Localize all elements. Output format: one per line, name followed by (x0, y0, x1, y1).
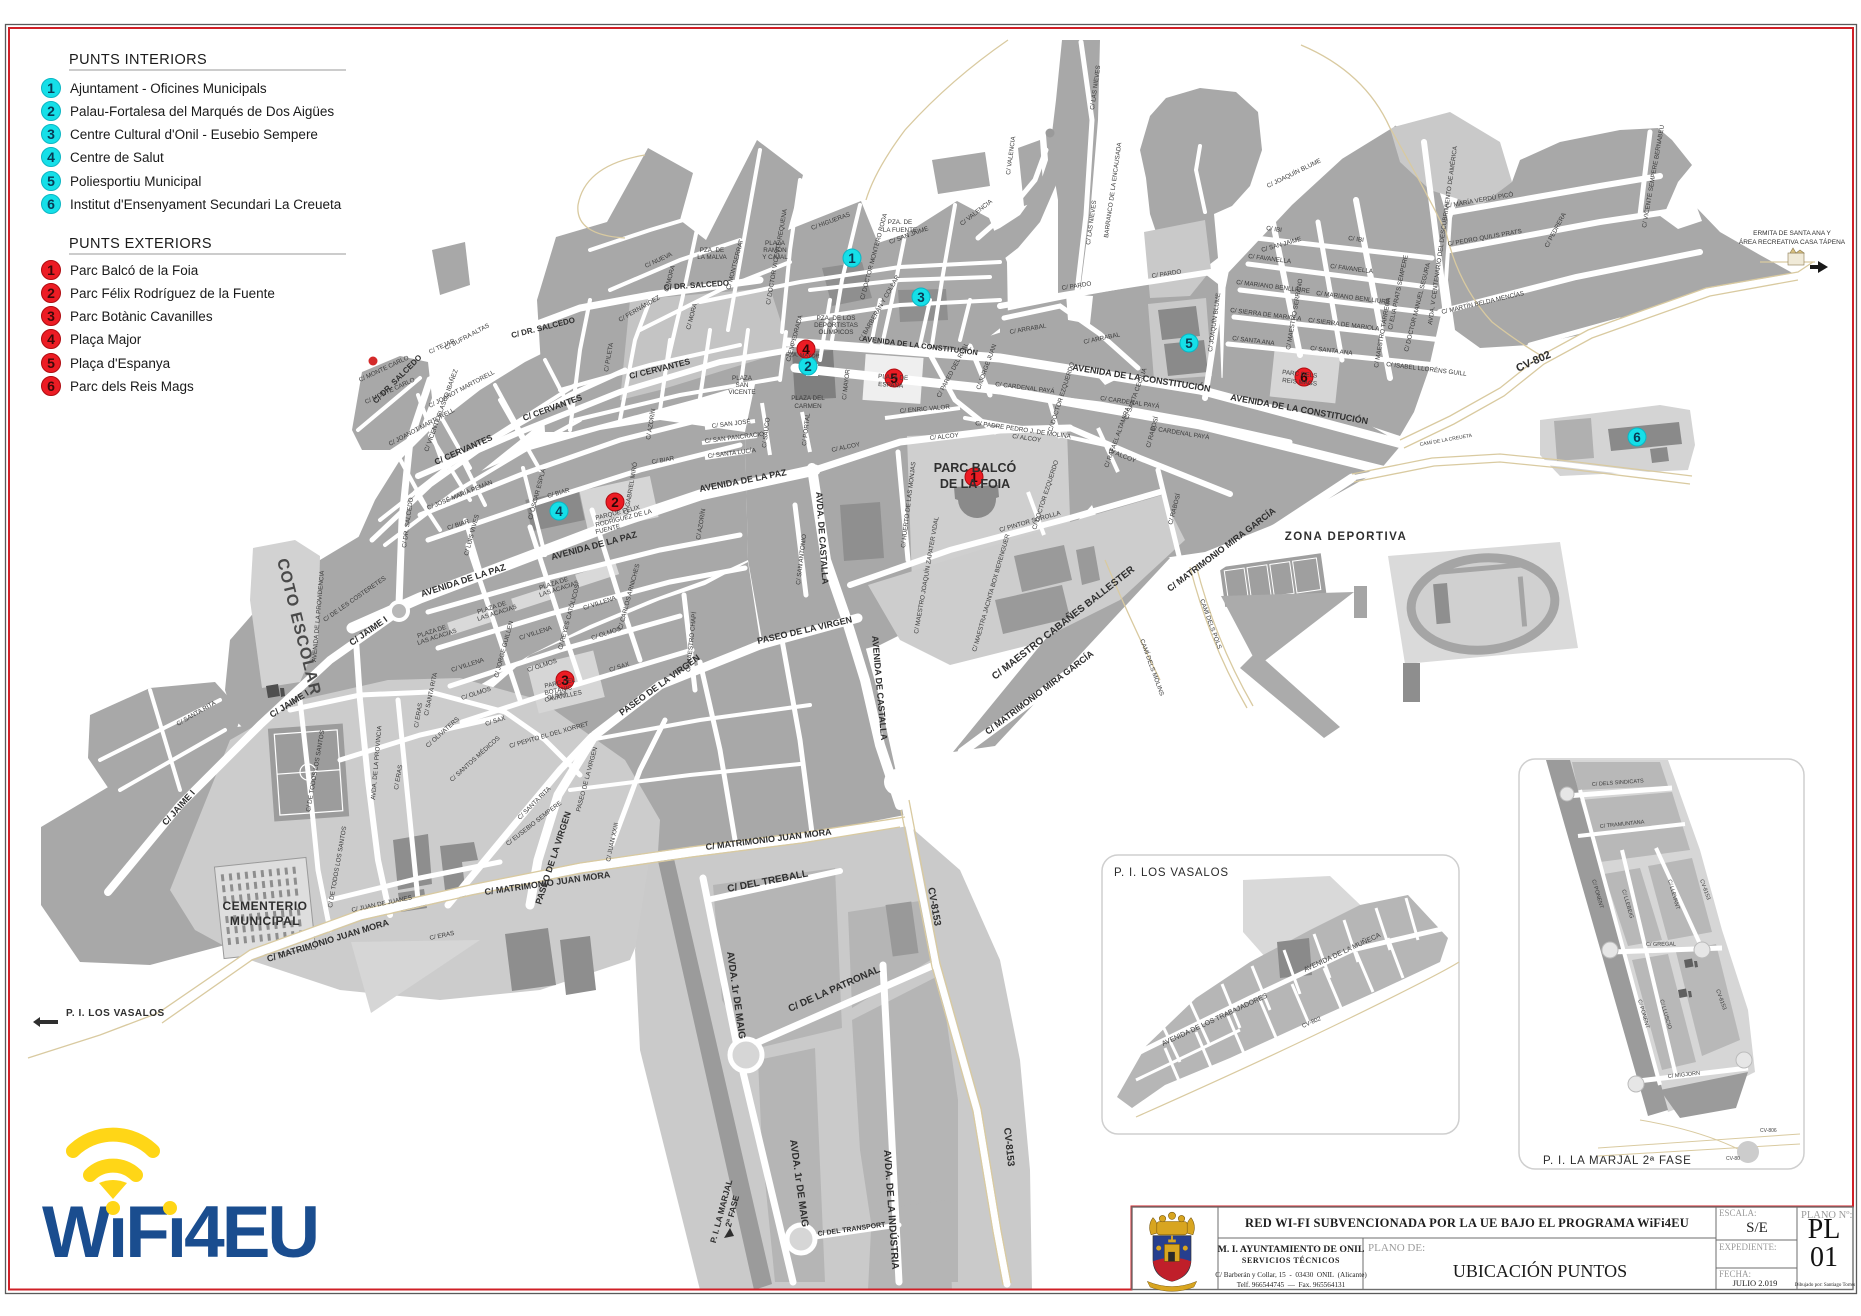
svg-text:5: 5 (47, 173, 55, 189)
svg-text:ÁREA RECREATIVA CASA TÁPENA: ÁREA RECREATIVA CASA TÁPENA (1739, 237, 1846, 246)
svg-text:UBICACIÓN PUNTOS: UBICACIÓN PUNTOS (1453, 1260, 1627, 1281)
svg-text:LA MALVA: LA MALVA (697, 254, 727, 261)
svg-text:Ajuntament - Oficines Municipa: Ajuntament - Oficines Municipals (70, 81, 267, 96)
svg-text:Parc Félix Rodríguez de la Fue: Parc Félix Rodríguez de la Fuente (70, 286, 275, 301)
svg-text:PZA. DE: PZA. DE (888, 219, 913, 226)
svg-text:DE LA FOIA: DE LA FOIA (940, 477, 1010, 491)
svg-text:PZA. DE LOS: PZA. DE LOS (817, 315, 856, 322)
svg-text:Centre de Salut: Centre de Salut (70, 150, 164, 165)
svg-text:PLANO DE:: PLANO DE: (1368, 1242, 1425, 1254)
svg-text:1: 1 (848, 251, 856, 266)
svg-text:3: 3 (47, 126, 55, 142)
svg-text:PL: PL (1808, 1214, 1841, 1245)
svg-text:JULIO 2.019: JULIO 2.019 (1733, 1278, 1778, 1288)
svg-text:WıFı4EU: WıFı4EU (42, 1192, 317, 1273)
svg-text:4: 4 (47, 331, 55, 347)
svg-text:01: 01 (1810, 1242, 1838, 1273)
svg-text:6: 6 (47, 196, 55, 212)
svg-text:CEMENTERIO: CEMENTERIO (222, 899, 307, 913)
svg-text:2: 2 (47, 285, 55, 301)
svg-text:PLAZA: PLAZA (732, 375, 753, 382)
svg-text:VICENTE: VICENTE (728, 389, 755, 396)
svg-text:EXPEDIENTE:: EXPEDIENTE: (1719, 1242, 1777, 1252)
svg-text:PUNTS INTERIORS: PUNTS INTERIORS (69, 52, 207, 68)
svg-text:P. I. LOS VASALOS: P. I. LOS VASALOS (66, 1008, 165, 1019)
svg-text:P. I. LOS VASALOS: P. I. LOS VASALOS (1114, 867, 1229, 879)
svg-text:2: 2 (47, 103, 55, 119)
svg-text:Parc Balcó de la Foia: Parc Balcó de la Foia (70, 263, 199, 278)
svg-text:S/E: S/E (1746, 1220, 1768, 1236)
svg-text:M. I. AYUNTAMIENTO DE ONIL: M. I. AYUNTAMIENTO DE ONIL (1218, 1244, 1365, 1255)
svg-text:Y CAJAL: Y CAJAL (762, 254, 788, 261)
svg-text:Plaça Major: Plaça Major (70, 332, 142, 347)
svg-text:SERVICIOS TÉCNICOS: SERVICIOS TÉCNICOS (1242, 1255, 1340, 1265)
svg-text:5: 5 (47, 355, 55, 371)
svg-text:1: 1 (47, 262, 55, 278)
svg-text:Palau-Fortalesa del Marqués de: Palau-Fortalesa del Marqués de Dos Aigüe… (70, 104, 334, 119)
svg-text:ESCALA:: ESCALA: (1719, 1208, 1757, 1218)
svg-text:6: 6 (1633, 430, 1641, 445)
svg-text:CV-80: CV-80 (1726, 1156, 1740, 1162)
svg-text:1: 1 (47, 80, 55, 96)
svg-text:MUNICIPAL: MUNICIPAL (230, 914, 300, 928)
svg-text:RAMÓN: RAMÓN (763, 245, 787, 254)
svg-text:4: 4 (47, 149, 55, 165)
svg-text:2: 2 (611, 495, 619, 510)
svg-text:DEPORTISTAS: DEPORTISTAS (814, 322, 858, 329)
svg-text:3: 3 (47, 308, 55, 324)
svg-text:CV-806: CV-806 (1760, 1128, 1777, 1134)
svg-text:Poliesportiu Municipal: Poliesportiu Municipal (70, 174, 201, 189)
svg-text:PLAZA DEL: PLAZA DEL (791, 395, 825, 402)
svg-text:4: 4 (555, 504, 563, 519)
svg-text:Parc Botànic Cavanilles: Parc Botànic Cavanilles (70, 309, 213, 324)
svg-text:CARMEN: CARMEN (794, 403, 822, 410)
svg-text:5: 5 (1185, 336, 1193, 351)
svg-text:RED WI-FI SUBVENCIONADA POR LA: RED WI-FI SUBVENCIONADA POR LA UE BAJO E… (1245, 1216, 1689, 1230)
svg-text:PZA. DE: PZA. DE (700, 247, 725, 254)
svg-text:PUNTS EXTERIORS: PUNTS EXTERIORS (69, 236, 212, 252)
svg-text:Telf. 966544745 — Fax. 96556: Telf. 966544745 — Fax. 965564131 (1237, 1281, 1346, 1289)
svg-text:P. I. LA MARJAL 2ª FASE: P. I. LA MARJAL 2ª FASE (1543, 1155, 1692, 1167)
svg-text:SAN: SAN (736, 382, 749, 389)
svg-text:Centre Cultural d'Onil - Euseb: Centre Cultural d'Onil - Eusebio Sempere (70, 127, 318, 142)
svg-text:PLAZA: PLAZA (765, 240, 786, 247)
svg-text:Plaça d'Espanya: Plaça d'Espanya (70, 356, 171, 371)
svg-text:2: 2 (804, 359, 812, 374)
svg-text:C/ Barberán y Collar, 15 - 0: C/ Barberán y Collar, 15 - 03430 ONIL (A… (1215, 1271, 1367, 1279)
svg-text:ERMITA DE SANTA ANA Y: ERMITA DE SANTA ANA Y (1753, 230, 1831, 237)
svg-text:Parc dels Reis Mags: Parc dels Reis Mags (70, 379, 194, 394)
svg-text:6: 6 (47, 378, 55, 394)
svg-text:Institut d'Ensenyament Secunda: Institut d'Ensenyament Secundari La Creu… (70, 197, 342, 212)
svg-text:PARC BALCÓ: PARC BALCÓ (934, 460, 1017, 475)
svg-text:Dibujado por: Santiago Torres: Dibujado por: Santiago Torres (1795, 1283, 1856, 1288)
svg-text:ZONA DEPORTIVA: ZONA DEPORTIVA (1285, 531, 1408, 543)
svg-text:3: 3 (917, 290, 925, 305)
svg-text:C/ GREGAL: C/ GREGAL (1646, 941, 1676, 948)
svg-text:OLÍMPICOS: OLÍMPICOS (819, 327, 854, 336)
